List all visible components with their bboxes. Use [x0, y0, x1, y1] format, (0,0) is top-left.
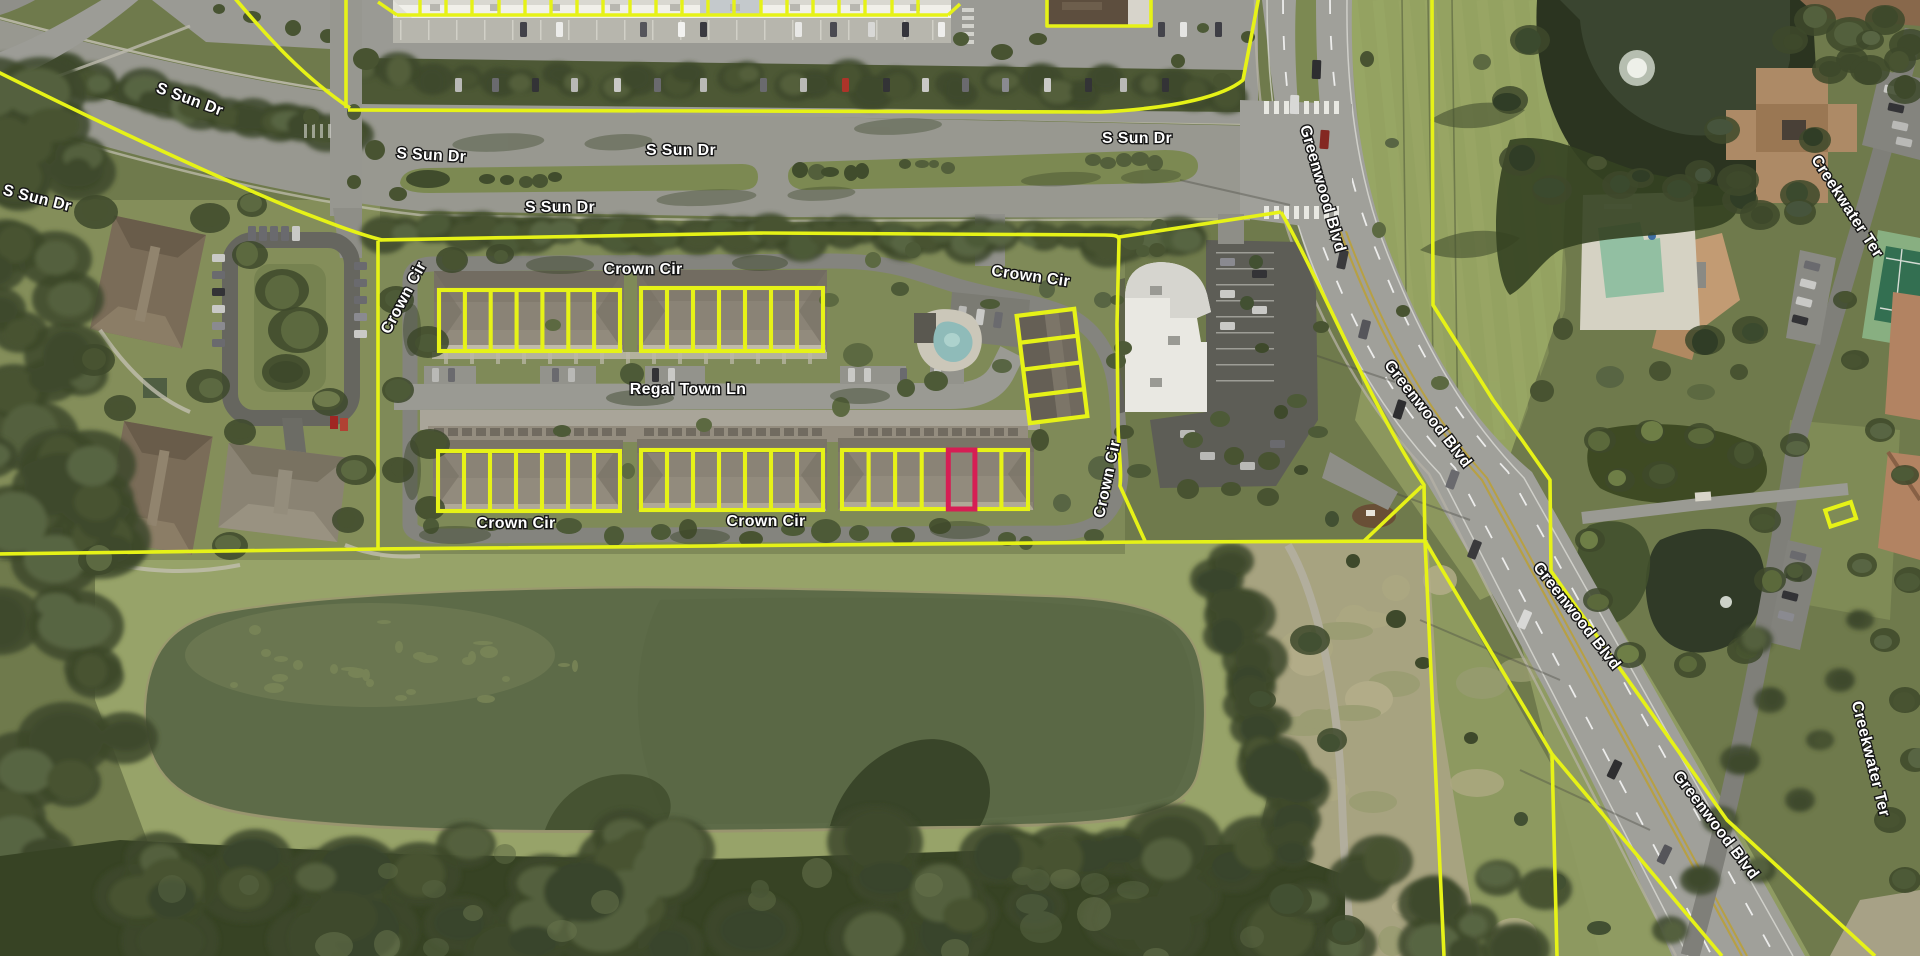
svg-text:S Sun Dr: S Sun Dr	[1102, 130, 1172, 147]
svg-text:S Sun Dr: S Sun Dr	[646, 142, 716, 159]
svg-text:S Sun Dr: S Sun Dr	[525, 199, 595, 216]
svg-text:Crown Cir: Crown Cir	[476, 515, 555, 532]
svg-text:Crown Cir: Crown Cir	[726, 513, 805, 530]
svg-text:Crown Cir: Crown Cir	[603, 261, 682, 278]
svg-text:Regal Town Ln: Regal Town Ln	[630, 381, 747, 398]
